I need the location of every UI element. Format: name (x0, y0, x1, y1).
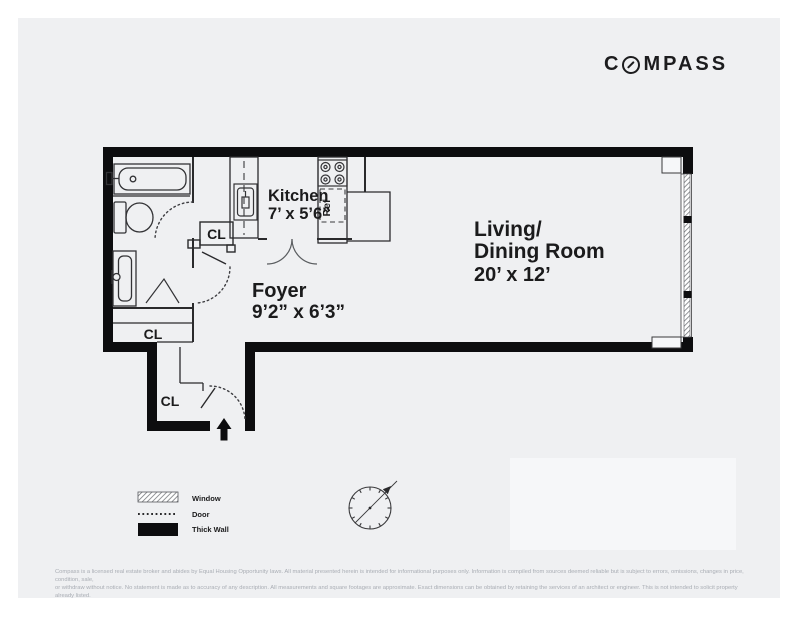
entry-arrow-icon (217, 418, 232, 441)
kitchen-sink-icon (234, 184, 257, 220)
legend-window-swatch (138, 492, 178, 502)
bathroom-door-arc (155, 202, 193, 240)
floor-plan: Ref Kitchen 7’ x 5’6” Foyer 9’2” x 6’3” … (0, 0, 800, 618)
bathroom-sink-icon (112, 251, 136, 306)
closet-label-upper: CL (207, 226, 226, 242)
bathtub-icon (107, 164, 191, 194)
window-sill-bottom (652, 337, 681, 348)
compass-needle (355, 481, 397, 523)
disclaimer: Compass is a licensed real estate broker… (55, 568, 747, 600)
disclaimer-line2: or withdraw without notice. No statement… (55, 584, 747, 600)
disclaimer-line1: Compass is a licensed real estate broker… (55, 568, 747, 584)
stove-icon (318, 160, 347, 186)
foyer-label: Foyer (252, 280, 307, 302)
foyer-door-arc (197, 267, 230, 303)
kitchen-label: Kitchen (268, 187, 329, 205)
kitchen-dims: 7’ x 5’6” (268, 205, 330, 223)
living-label-line2: Dining Room (474, 240, 605, 263)
thick-walls (103, 147, 693, 431)
foyer-dims: 9’2” x 6’3” (252, 302, 345, 323)
legend-window-label: Window (192, 494, 221, 503)
legend: Window Door Thick Wall (138, 492, 229, 536)
closet-label-lower: CL (161, 393, 180, 409)
floorplan-page: CMPASS (0, 0, 800, 618)
window-sill-top (662, 157, 681, 173)
living-label-line1: Living/ (474, 218, 542, 241)
closet-label-mid: CL (144, 326, 163, 342)
living-dims: 20’ x 12’ (474, 264, 551, 286)
toilet-icon (114, 202, 153, 233)
bathroom-closet-door-leaf (146, 279, 179, 303)
window-mullion (684, 216, 692, 223)
window (681, 174, 692, 337)
compass-rose-icon (349, 481, 397, 529)
kitchen-double-door (267, 239, 317, 264)
entry-door-arc (210, 386, 245, 421)
window-mullion (684, 291, 692, 298)
legend-thick-wall-swatch (138, 523, 178, 536)
legend-thick-wall-label: Thick Wall (192, 525, 229, 534)
legend-door-label: Door (192, 510, 210, 519)
